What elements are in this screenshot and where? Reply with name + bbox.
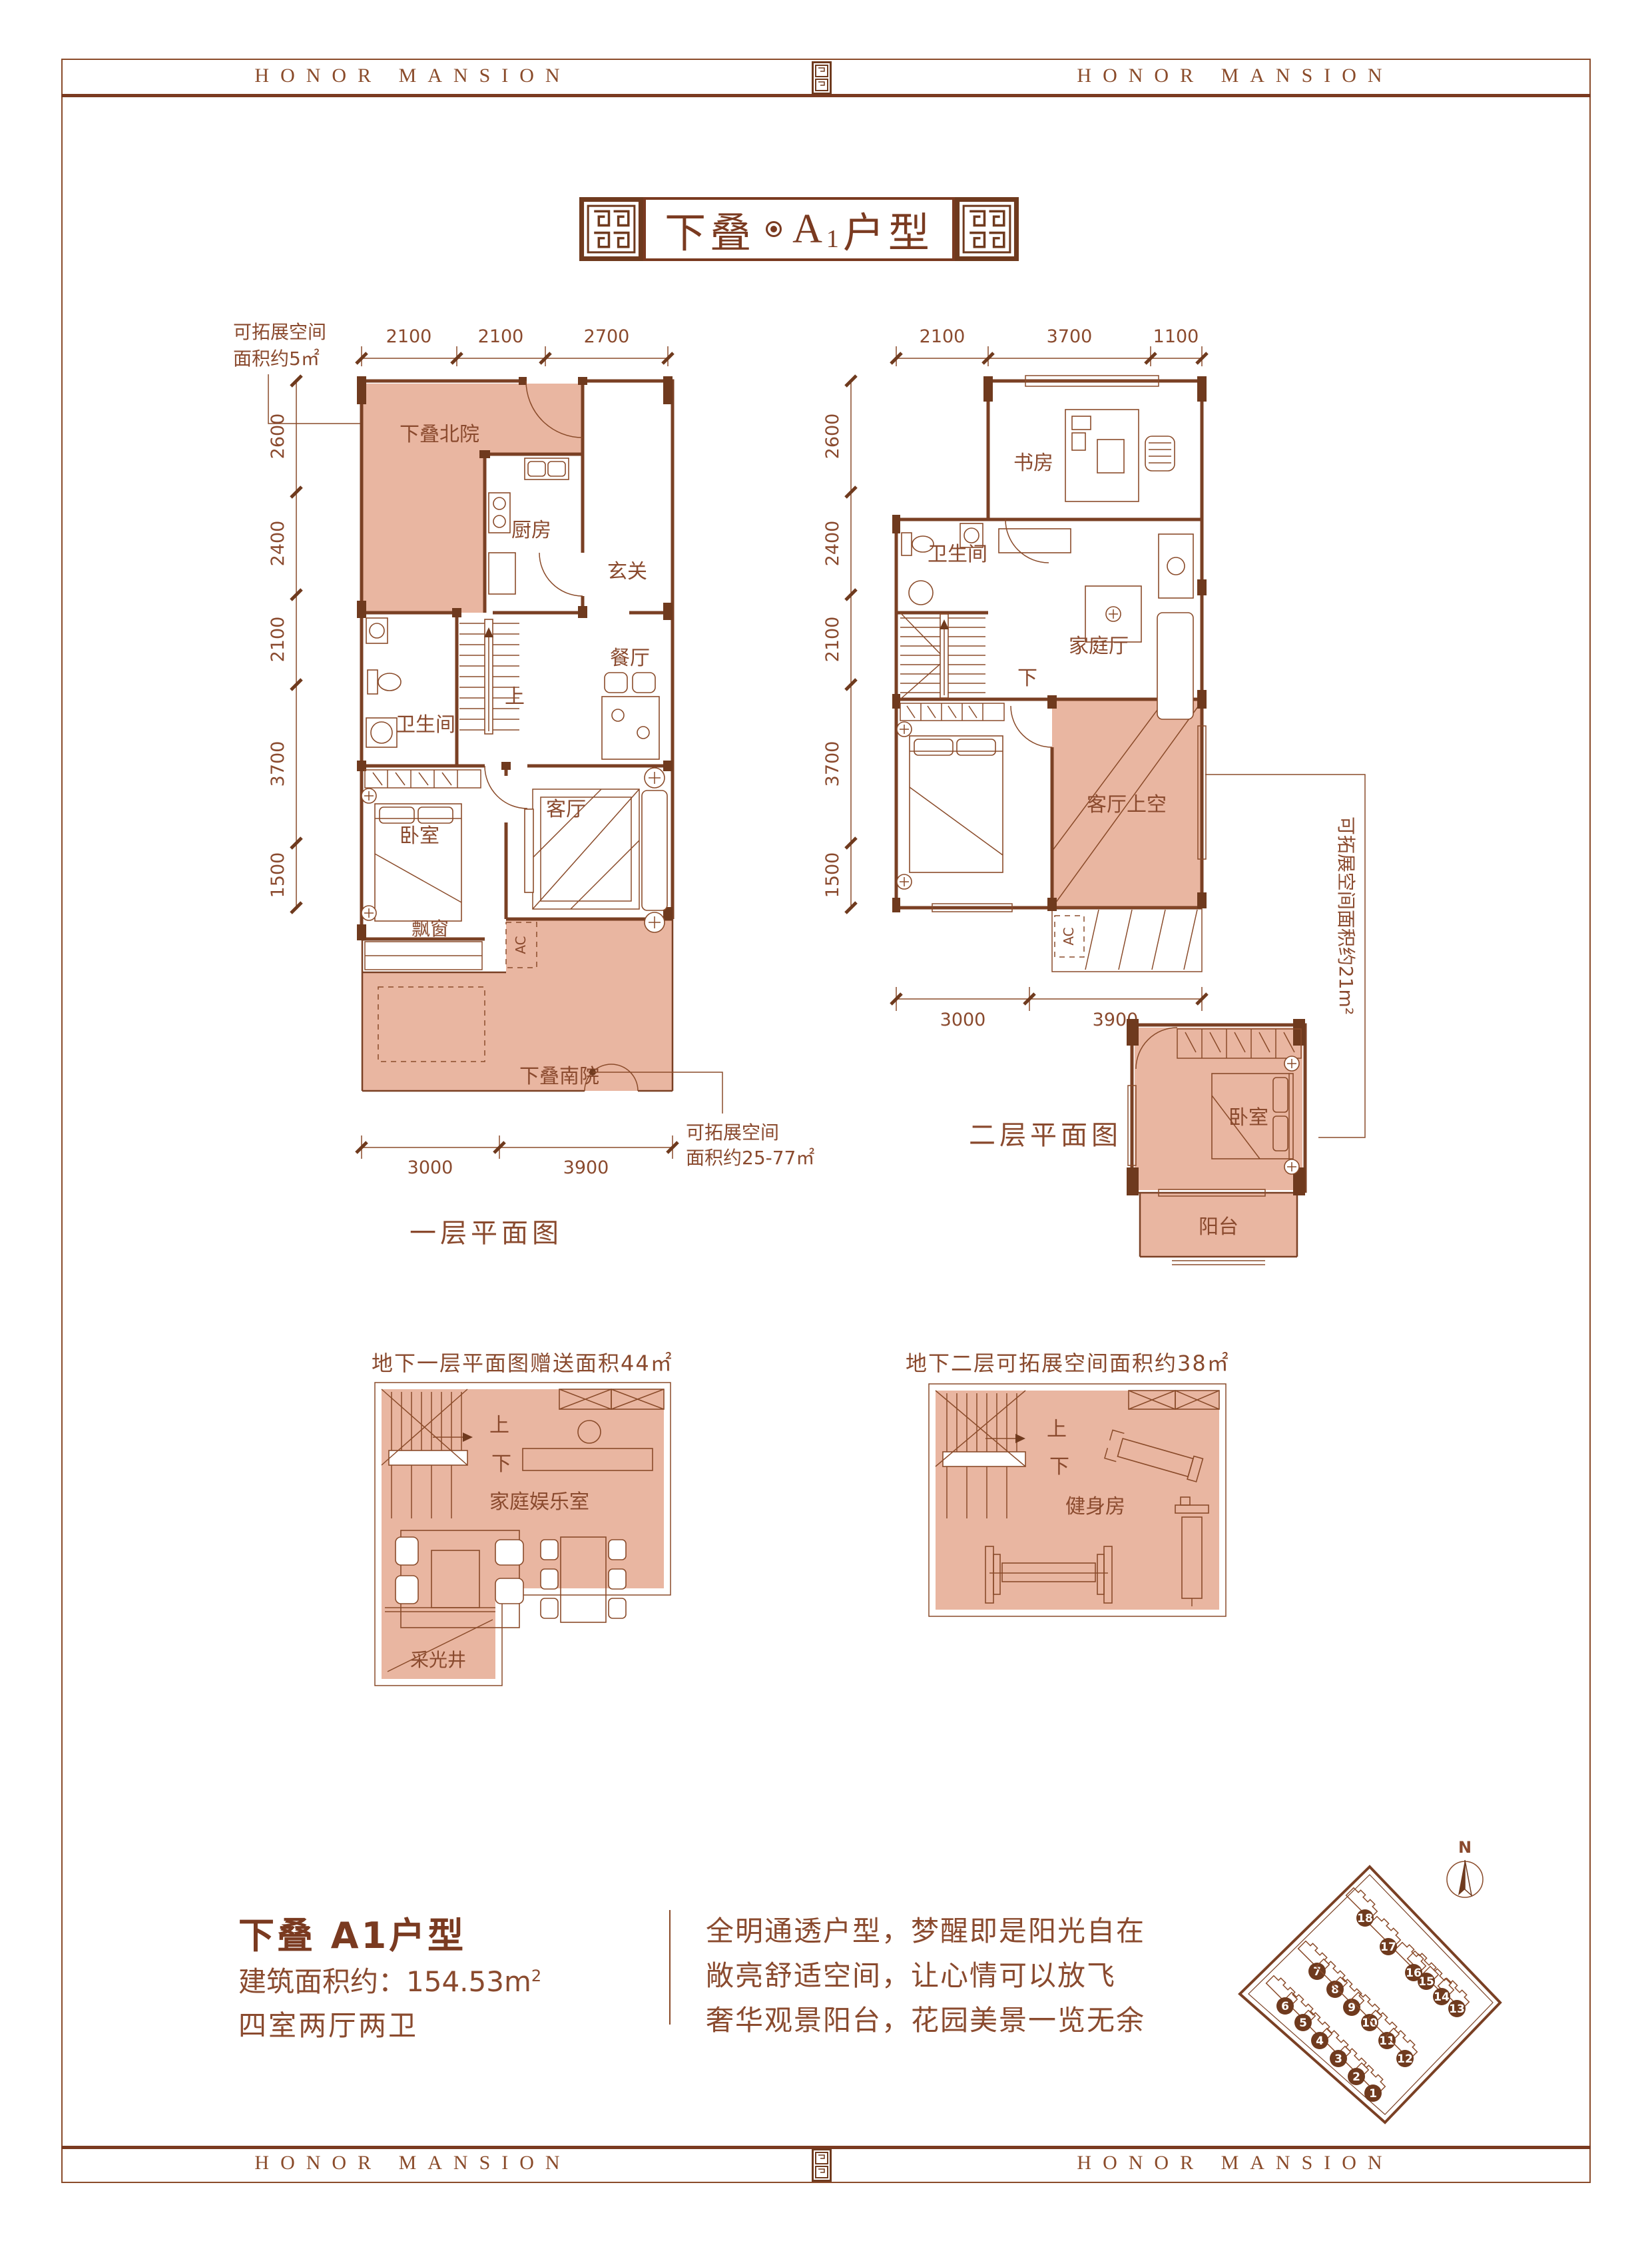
building-number: 16	[1406, 1967, 1422, 1980]
footer-bottom-rule	[61, 2182, 1591, 2183]
basement2-label-gym: 健身房	[1065, 1495, 1125, 1518]
floor2-bedroom-furniture	[897, 703, 1004, 889]
floor1-label-foyer: 玄关	[607, 560, 647, 583]
floor2-dim: 2100	[920, 326, 965, 347]
unit-area-label: 建筑面积约：	[238, 1965, 406, 1998]
floor2-label-study: 书房	[1013, 452, 1053, 475]
floor1-living-furniture	[525, 768, 667, 932]
header-brand-right: HONOR MANSION	[969, 65, 1502, 87]
basement1-label-light-well: 采光井	[410, 1649, 466, 1671]
footer-brand-left: HONOR MANSION	[146, 2152, 679, 2174]
floor2-dim: 2100	[822, 617, 843, 663]
unit-area: 建筑面积约：154.53m2	[238, 1959, 541, 2000]
floor1-label-bay-window: 飘窗	[412, 918, 449, 940]
floor1-label-bathroom: 卫生间	[396, 713, 455, 737]
floor2-dim: 2600	[822, 414, 843, 460]
building-number: 13	[1449, 2003, 1465, 2016]
header-top-rule	[61, 59, 1591, 60]
title-unit: A	[792, 206, 826, 253]
basement2-plan: 上 下 健身房	[892, 1365, 1252, 1685]
floor1-dim: 3000	[408, 1157, 453, 1178]
title-separator-icon	[766, 221, 782, 237]
title-seal-right-icon	[955, 197, 1019, 261]
floor2-label-living-void: 客厅上空	[1087, 793, 1167, 816]
basement1-label-up: 上	[489, 1414, 509, 1437]
floor2-label-bathroom: 卫生间	[928, 543, 987, 566]
floor1-label-stairs-up: 上	[505, 685, 525, 709]
annex-room-area	[1135, 1028, 1302, 1190]
building-number: 12	[1397, 2053, 1413, 2066]
footer-brand-right: HONOR MANSION	[969, 2152, 1502, 2174]
floor1-dim: 2600	[268, 414, 288, 460]
basement2-label-up: 上	[1047, 1418, 1067, 1441]
floor1-dim: 2100	[386, 326, 432, 347]
slogan-line2: 敞亮舒适空间，让心情可以放飞	[706, 1953, 1116, 1994]
floor2-dim: 1500	[822, 852, 843, 898]
floor2-label-ac: AC	[1061, 927, 1077, 945]
floor1-bay-window	[365, 942, 482, 970]
floor1-caption: 一层平面图	[410, 1218, 563, 1249]
site-buildings: 1 2 3 4 5 6 7 8 9 10 11 12 13 1	[1266, 1885, 1472, 2102]
site-boundary	[1240, 1867, 1500, 2122]
floor2-dim: 3700	[822, 741, 843, 787]
site-plan: N 1 2 3 4 5 6 7 8 9 10 11 12	[1212, 1825, 1538, 2144]
floor1-dim: 2100	[268, 617, 288, 663]
building-number: 3	[1334, 2053, 1342, 2066]
floor2-label-family-hall: 家庭厅	[1069, 635, 1129, 658]
annex-bedroom-plan: 卧室 阳台	[1092, 999, 1392, 1285]
building-number: 2	[1352, 2071, 1360, 2084]
building-number: 10	[1362, 2017, 1378, 2030]
floor1-label-north-yard: 下叠北院	[400, 423, 479, 446]
floor2-dims-top: 2100 3700 1100	[891, 326, 1207, 366]
floor1-dim: 1500	[268, 852, 288, 898]
basement2-label-down: 下	[1049, 1455, 1069, 1478]
compass-north-label: N	[1458, 1838, 1472, 1857]
annex-label-bedroom: 卧室	[1229, 1106, 1268, 1129]
building-number: 17	[1380, 1941, 1396, 1954]
floor1-label-ac: AC	[513, 936, 529, 954]
floor1-dim: 2100	[478, 326, 524, 347]
header-brand-left: HONOR MANSION	[146, 65, 679, 87]
floor1-north-yard-area	[362, 384, 583, 613]
floor1-dims-bottom: 3000 3900	[356, 1135, 678, 1178]
unit-area-sup: 2	[531, 1967, 541, 1985]
floor1-dining-furniture	[602, 673, 659, 759]
floor2-dims-left: 2600 2400 2100 3700 1500	[822, 376, 856, 913]
compass-icon: N	[1447, 1838, 1483, 1897]
floor2-stairs	[900, 613, 985, 699]
floor2-dim: 3700	[1047, 326, 1093, 347]
building-number: 4	[1316, 2035, 1324, 2048]
floor2-study-furniture	[1065, 410, 1175, 501]
info-divider	[669, 1910, 671, 2025]
floor1-label-bedroom: 卧室	[400, 824, 439, 848]
site-inner-boundary	[1248, 1875, 1493, 2114]
floor1-dim: 3900	[563, 1157, 609, 1178]
footer-seal-icon	[812, 2148, 832, 2182]
floor2-dim: 3000	[940, 1010, 986, 1030]
basement1-label-entertainment: 家庭娱乐室	[489, 1490, 589, 1514]
title-unit-sub: 1	[826, 220, 843, 258]
title-part2: 户型	[843, 199, 934, 259]
title-seal-left-icon	[579, 197, 643, 261]
page-title: 下叠 A 1 户型	[643, 197, 955, 261]
floor2-doors	[1005, 519, 1052, 747]
floor1-dim: 3700	[268, 741, 288, 787]
page-title-bar: 下叠 A 1 户型	[579, 197, 1019, 261]
floor1-label-living: 客厅	[546, 798, 586, 821]
frame-left	[61, 59, 63, 2183]
title-part1: 下叠	[665, 199, 755, 259]
basement1-label-down: 下	[491, 1452, 511, 1476]
floor1-annotation-nw-line2: 面积约5㎡	[233, 348, 320, 370]
basement1-plan: 上 下 家庭娱乐室 采光井	[360, 1365, 692, 1705]
building-number: 1	[1369, 2087, 1377, 2100]
floor1-plan: 可拓展空间 面积约5㎡ 2100 2100 2700 2600 2400 210…	[220, 300, 846, 1252]
slogan-line1: 全明通透户型，梦醒即是阳光自在	[706, 1909, 1145, 1949]
floor1-annotation-se-line1: 可拓展空间	[686, 1121, 779, 1143]
floor2-annotation-right-text: 可拓展空间面积约21m²	[1335, 816, 1357, 1015]
brochure-page: HONOR MANSION HONOR MANSION 下叠 A 1 户型	[0, 0, 1652, 2243]
floor1-label-kitchen: 厨房	[511, 519, 551, 542]
building-number: 5	[1299, 2017, 1307, 2030]
building-number: 14	[1434, 1991, 1450, 2004]
building-number: 6	[1281, 2000, 1289, 2013]
floor1-dims-top: 2100 2100 2700	[356, 326, 673, 366]
floor1-dims-left: 2600 2400 2100 3700 1500	[268, 376, 302, 913]
frame-right	[1589, 59, 1591, 2183]
floor2-dim: 2400	[822, 521, 843, 567]
floor2-dim: 1100	[1153, 326, 1199, 347]
unit-area-value: 154.53m	[406, 1965, 531, 1998]
unit-layout: 四室两厅两卫	[238, 2003, 418, 2044]
floor1-dim: 2400	[268, 521, 288, 567]
floor1-label-dining: 餐厅	[610, 647, 650, 670]
unit-title: 下叠 A1户型	[238, 1906, 466, 1959]
basement1-area	[382, 1389, 664, 1679]
annex-label-balcony: 阳台	[1199, 1215, 1239, 1239]
slogan-line3: 奢华观景阳台，花园美景一览无余	[706, 1998, 1145, 2039]
header-seal-icon	[812, 61, 832, 95]
building-number: 18	[1357, 1912, 1373, 1925]
floor1-label-south-yard: 下叠南院	[519, 1065, 599, 1088]
floor1-annotation-nw-line1: 可拓展空间	[233, 321, 326, 343]
floor2-label-stairs-down: 下	[1017, 667, 1037, 690]
floor1-dim: 2700	[584, 326, 630, 347]
floor1-stairs	[459, 619, 519, 734]
